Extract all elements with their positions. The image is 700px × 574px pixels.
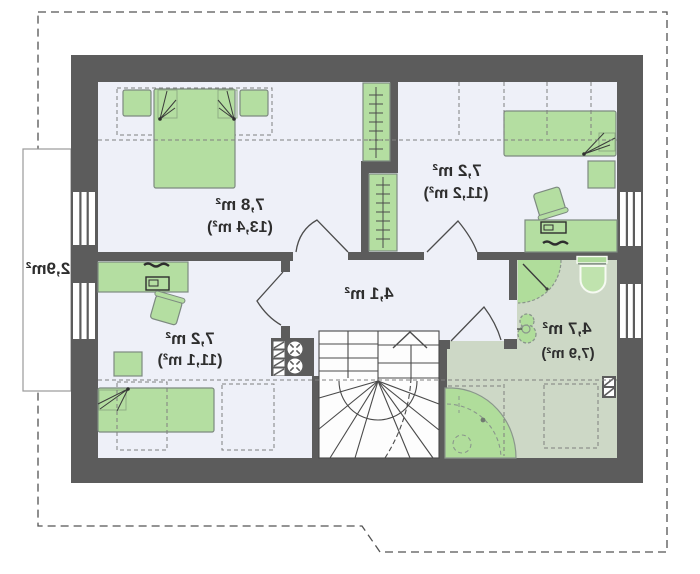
svg-text:(13,4 m²): (13,4 m²) xyxy=(207,219,273,236)
svg-text:(7,9 m²): (7,9 m²) xyxy=(541,345,594,362)
svg-text:(11,2 m²): (11,2 m²) xyxy=(424,185,489,202)
svg-text:2,9m²: 2,9m² xyxy=(25,259,70,278)
svg-text:4,7 m²: 4,7 m² xyxy=(542,319,591,338)
svg-text:7,2 m²: 7,2 m² xyxy=(432,161,481,180)
svg-text:4,1 m²: 4,1 m² xyxy=(344,284,393,303)
svg-text:7,2 m²: 7,2 m² xyxy=(165,329,214,348)
svg-text:7,8 m²: 7,8 m² xyxy=(215,195,264,214)
svg-text:(11,1 m²): (11,1 m²) xyxy=(158,352,223,369)
